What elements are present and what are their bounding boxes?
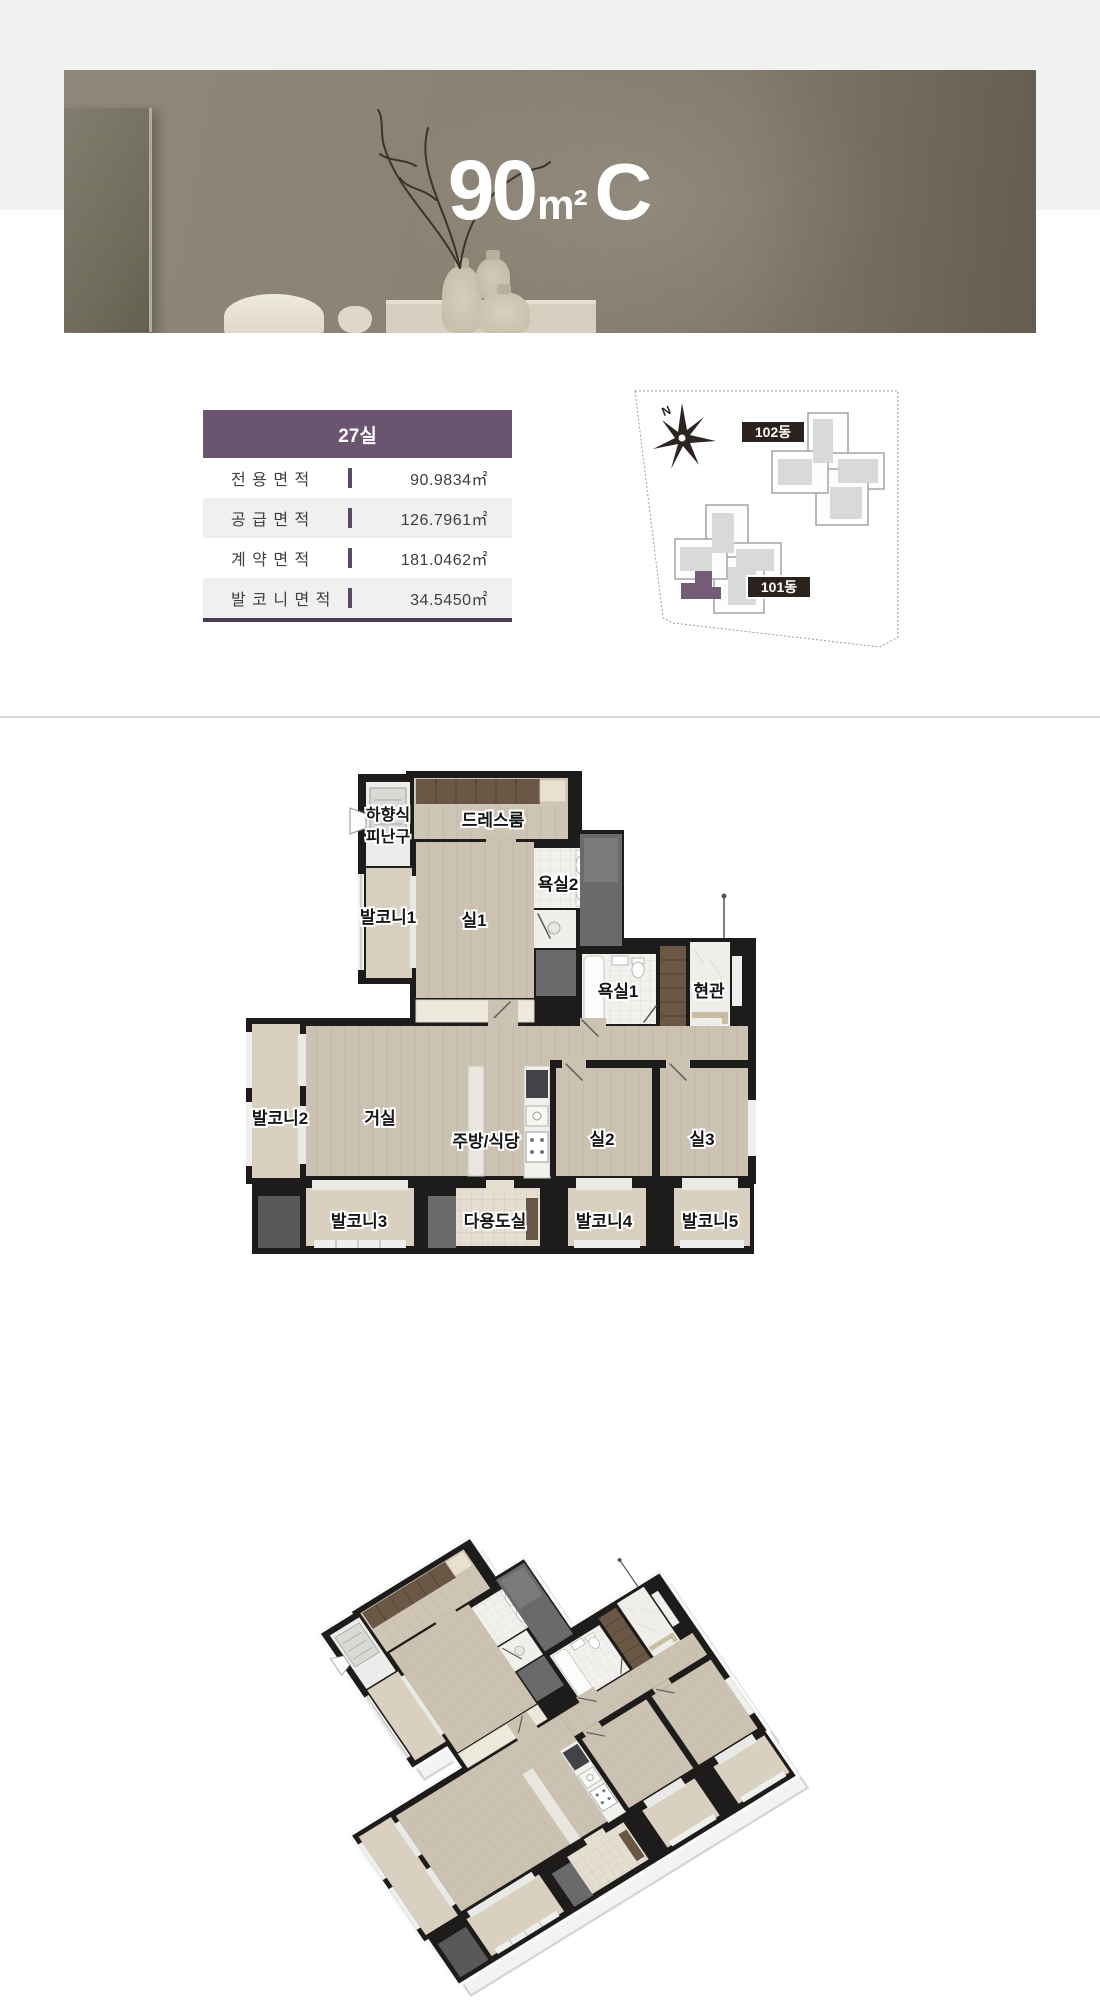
table-row: 공 급 면 적 126.7961㎡	[203, 498, 512, 538]
floor-plan-3d-drawing	[244, 1467, 797, 1986]
room-label-dress-room: 드레스룸	[462, 811, 525, 830]
room-label-living: 거실	[364, 1109, 395, 1128]
unit-page: 90 m² C 27실 전 용 면 적 90.9834㎡ 공 급 면 적 126…	[0, 0, 1100, 2009]
room-label-room3: 실3	[689, 1130, 714, 1149]
area-label: 발 코 니 면 적	[203, 586, 348, 610]
unit-type-letter: C	[595, 152, 653, 232]
room-label-balcony5: 발코니5	[682, 1212, 738, 1231]
room-label-escape-hatch: 피난구	[366, 828, 410, 846]
room-label-balcony1: 발코니1	[360, 908, 416, 927]
room-label-bath1: 욕실1	[598, 982, 639, 1001]
room-label-entrance: 현관	[693, 982, 725, 1001]
area-label: 전 용 면 적	[203, 466, 348, 490]
svg-text:102동: 102동	[755, 424, 791, 440]
unit-title: 90 m² C	[64, 148, 1036, 232]
building-102-label: 102동	[741, 421, 805, 443]
row-divider-bar	[348, 468, 352, 488]
room-label-balcony4: 발코니4	[576, 1212, 633, 1231]
hero-banner: 90 m² C	[64, 70, 1036, 333]
unit-area-unit: m²	[537, 181, 586, 229]
area-value: 126.7961㎡	[360, 506, 512, 530]
room-label-balcony3: 발코니3	[331, 1212, 387, 1231]
table-header: 27실	[203, 410, 512, 458]
site-plan: N 102동 101동	[620, 375, 910, 665]
row-divider-bar	[348, 548, 352, 568]
table-row: 전 용 면 적 90.9834㎡	[203, 458, 512, 498]
room-label-room2: 실2	[589, 1130, 614, 1149]
area-value: 90.9834㎡	[360, 466, 512, 490]
area-value: 34.5450㎡	[360, 586, 512, 610]
room-label-balcony2: 발코니2	[252, 1109, 308, 1128]
section-divider	[0, 716, 1100, 718]
room-label-room1: 실1	[461, 911, 486, 930]
unit-area-number: 90	[448, 148, 535, 232]
room-label-escape-hatch: 하향식	[366, 805, 410, 824]
area-value: 181.0462㎡	[360, 546, 512, 570]
svg-text:101동: 101동	[761, 579, 797, 595]
floor-plan-2d: 하향식 피난구 드레스룸 욕실2 발코니1 실1 욕실1 현관 발코니2 거실 …	[240, 770, 880, 1270]
room-label-kitchen: 주방/식당	[452, 1132, 520, 1151]
table-row: 발 코 니 면 적 34.5450㎡	[203, 578, 512, 618]
row-divider-bar	[348, 588, 352, 608]
floor-plan-3d	[200, 1382, 900, 2007]
area-label: 공 급 면 적	[203, 506, 348, 530]
room-label-bath2: 욕실2	[538, 875, 579, 894]
area-label: 계 약 면 적	[203, 546, 348, 570]
building-101-label: 101동	[747, 576, 811, 598]
row-divider-bar	[348, 508, 352, 528]
table-row: 계 약 면 적 181.0462㎡	[203, 538, 512, 578]
floor-plan-drawing	[246, 771, 756, 1254]
room-label-utility: 다용도실	[464, 1212, 527, 1231]
area-info-table: 27실 전 용 면 적 90.9834㎡ 공 급 면 적 126.7961㎡ 계…	[203, 410, 512, 622]
